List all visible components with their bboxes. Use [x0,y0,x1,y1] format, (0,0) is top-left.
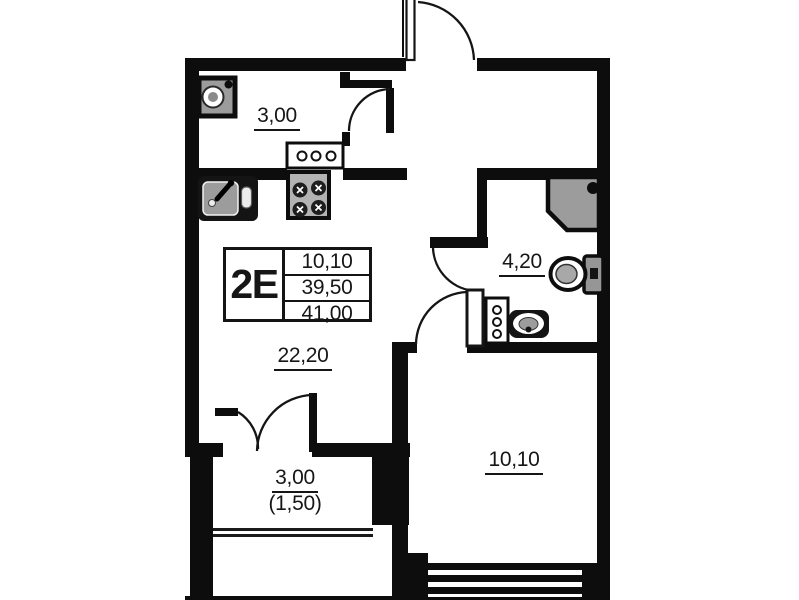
kitchen-shaft-icon [287,143,343,168]
kitchen-sink-icon [198,176,258,221]
floor-plan: 3,00 22,20 4,20 10,10 3,00 (1,50) 2E 10,… [0,0,799,600]
unit-type-label: 2E [226,250,285,319]
balcony-coefficient-area-label: (1,50) [258,492,332,516]
bedroom-door-icon [416,290,483,346]
total-area-value: 41,00 [285,302,369,326]
window-icon [424,563,582,600]
bedroom-area-label: 10,10 [482,448,546,475]
bathroom-shaft-icon [486,298,508,343]
unit-area-rows: 10,10 39,50 41,00 [285,250,369,319]
floor-plan-drawing [0,0,799,600]
toilet-icon [551,256,604,293]
bathroom-area-label: 4,20 [494,250,550,277]
apartment-area-value: 39,50 [285,276,369,302]
balcony-glazing-icon [213,528,373,537]
washbasin-icon [509,310,549,338]
shower-icon [548,177,599,230]
balcony-door-icon [215,393,317,452]
bathroom-door-icon [433,248,477,291]
living-area-value: 10,10 [285,250,369,276]
kitchen-living-area-label: 22,20 [270,344,336,371]
interior-door-icon [349,88,394,133]
hallway-area-label: 3,00 [249,104,305,131]
stove-icon [288,172,329,218]
washing-machine-icon [199,78,235,116]
unit-info-table: 2E 10,10 39,50 41,00 [223,247,372,322]
balcony-area-label: 3,00 [267,466,323,493]
entry-door-icon [407,0,475,60]
